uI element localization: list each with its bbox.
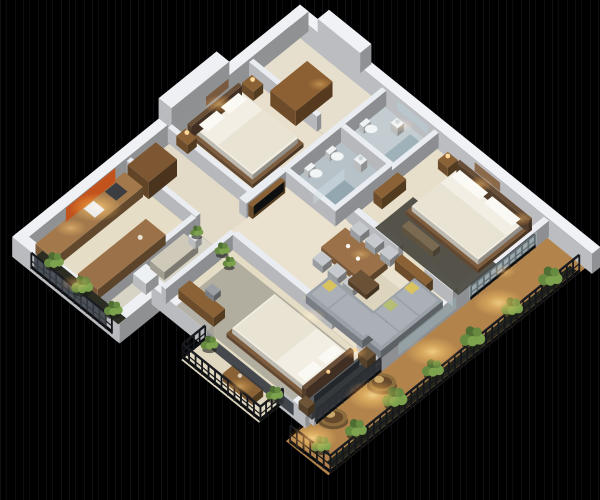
glow-kitchen (70, 193, 122, 222)
hall-plant-1 (219, 248, 225, 254)
toilet-bath2 (365, 124, 378, 133)
glow-master-2 (508, 212, 534, 226)
terrace-decor (238, 374, 242, 378)
glow-master-balcony-door (491, 264, 517, 278)
balcony-plant-1 (545, 276, 555, 286)
pendant-b3-s (326, 370, 330, 374)
tableware-1 (346, 244, 350, 248)
terrace-plant-2 (271, 393, 278, 400)
terrace-plant-2 (275, 387, 281, 393)
utility-plant (197, 226, 202, 231)
lamp-b2-s (184, 130, 189, 135)
balcony-plant-6 (351, 428, 360, 437)
balcony-plant-6 (356, 420, 364, 428)
toilet-bath1 (331, 152, 344, 161)
balcony-plant-3 (473, 327, 482, 336)
terrace-plant-1 (209, 337, 215, 343)
glow-kitchen-2 (55, 219, 87, 237)
island-decor (138, 235, 143, 240)
balcony-plant-3 (467, 336, 477, 346)
court-plant-3 (110, 308, 118, 316)
glow-bedroom2-art (203, 95, 239, 115)
balcony-plant-4 (428, 368, 437, 377)
hall-plant-2 (229, 257, 234, 262)
balcony-plant-1 (550, 268, 559, 277)
glow-foyer (308, 78, 332, 91)
glow-balcony-4 (288, 424, 338, 452)
glow-balcony-1 (473, 288, 525, 317)
court-plant-1 (50, 260, 58, 268)
lamp-b2-n (250, 77, 255, 82)
glow-master-1 (463, 176, 493, 193)
court-plant-1 (54, 253, 61, 260)
hall-plant-1 (222, 243, 228, 249)
hall-plant-2 (227, 261, 232, 266)
glow-bath2 (389, 118, 415, 132)
terrace-plant-1 (206, 343, 213, 350)
background (0, 0, 600, 500)
glow-balcony-3 (345, 380, 401, 411)
glow-bedroom3-2 (342, 345, 368, 359)
court-plant-3 (113, 302, 120, 309)
sink-bath1-basin (359, 156, 363, 160)
bidet-bath1 (310, 169, 323, 178)
glow-bedroom3-1 (296, 308, 326, 325)
glow-balcony-2 (405, 337, 459, 367)
glow-terrace (224, 378, 254, 395)
glow-court (60, 275, 92, 293)
utility-plant (194, 231, 199, 236)
glow-dining (350, 248, 372, 260)
lamp-master (445, 154, 450, 159)
floor-plan-3d-render (0, 0, 600, 500)
